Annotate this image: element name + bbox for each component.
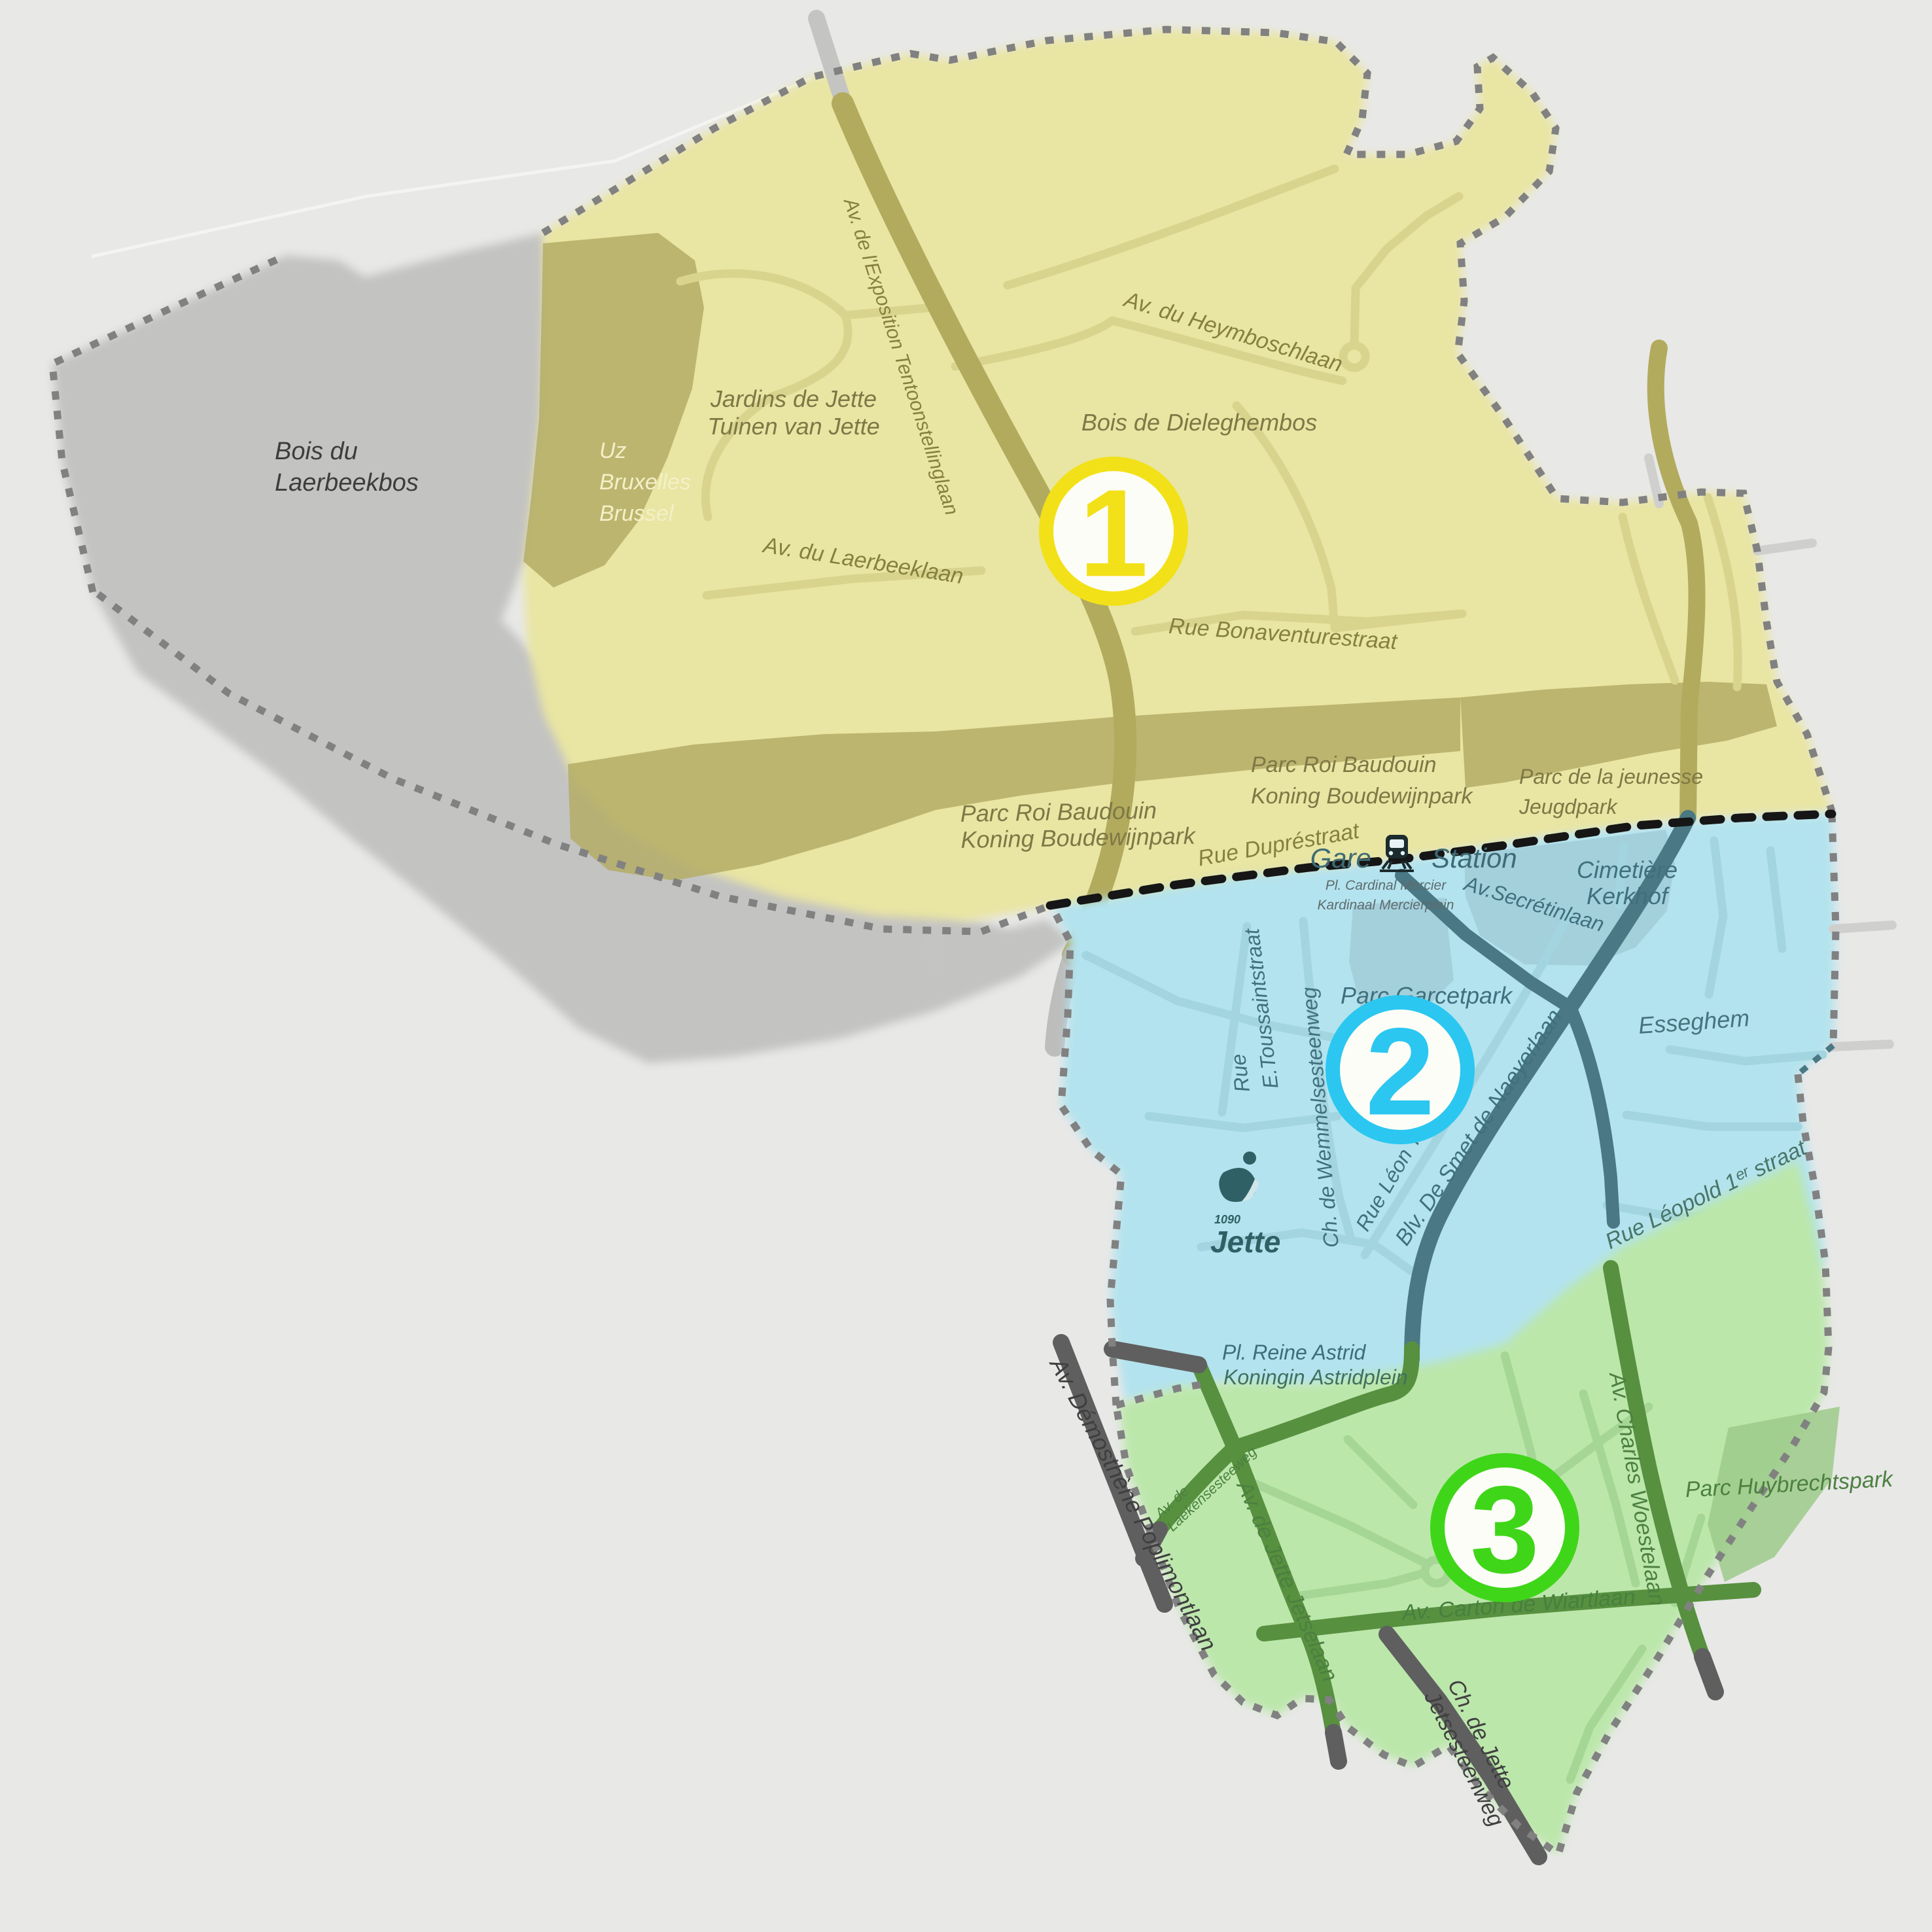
label-pl-reine-astrid-line-0: Pl. Reine Astrid bbox=[1222, 1341, 1367, 1364]
label-parc-roi-baudouin-east-line-0: Parc Roi Baudouin bbox=[1251, 752, 1437, 777]
road-stub-right-2 bbox=[1832, 1044, 1889, 1047]
label-uz-bruxelles-brussel-line-0: Uz bbox=[599, 438, 627, 463]
zone-marker-1: 1 bbox=[1046, 464, 1181, 603]
label-parc-de-la-jeunesse-line-1: Jeugdpark bbox=[1519, 795, 1618, 818]
label-parc-roi-baudouin-west-line-0: Parc Roi Baudouin bbox=[960, 797, 1157, 827]
jette-zone-map[interactable]: Bois duLaerbeekbosUzBruxellesBrusselJard… bbox=[0, 0, 1932, 1932]
zone-marker-number: 2 bbox=[1365, 1002, 1435, 1141]
zone-marker-number: 1 bbox=[1079, 464, 1148, 603]
label-jardins-de-jette: Jardins de JetteTuinen van Jette bbox=[707, 385, 880, 440]
label-parc-roi-baudouin-east-line-1: Koning Boudewijnpark bbox=[1251, 784, 1473, 809]
label-pl-reine-astrid: Pl. Reine Astrid bbox=[1222, 1341, 1367, 1364]
label-koningin-astridplein: Koningin Astridplein bbox=[1223, 1365, 1408, 1389]
label-bois-du-laerbeekbos-line-0: Bois du bbox=[275, 438, 358, 465]
label-gare: Gare bbox=[1310, 843, 1371, 873]
label-cimetiere-kerkhof: CimetièreKerkhof bbox=[1577, 856, 1677, 909]
label-cimetiere-kerkhof-line-1: Kerkhof bbox=[1587, 883, 1670, 909]
label-rue-e-toussaintstraat-line-0: Rue bbox=[1226, 1053, 1254, 1094]
label-jette-postcode-line-0: 1090 bbox=[1214, 1213, 1240, 1226]
label-jardins-de-jette-line-0: Jardins de Jette bbox=[710, 385, 877, 412]
label-bois-du-laerbeekbos-line-1: Laerbeekbos bbox=[275, 469, 419, 497]
label-jette-postcode: 1090 bbox=[1214, 1213, 1240, 1226]
zone-marker-3: 3 bbox=[1437, 1460, 1572, 1599]
label-station-line-0: Station bbox=[1431, 843, 1517, 873]
label-gare-line-0: Gare bbox=[1310, 843, 1371, 873]
label-jette-name-line-0: Jette bbox=[1210, 1225, 1280, 1259]
road-stub-right-1 bbox=[1833, 925, 1892, 929]
zone-marker-2: 2 bbox=[1333, 1002, 1467, 1141]
label-pl-cardinal-mercier-line-0: Pl. Cardinal Mercier bbox=[1326, 878, 1447, 893]
label-cimetiere-kerkhof-line-0: Cimetière bbox=[1577, 856, 1677, 883]
label-uz-bruxelles-brussel-line-1: Bruxelles bbox=[599, 470, 691, 495]
label-station: Station bbox=[1431, 843, 1517, 873]
label-bois-de-dieleghembos-line-0: Bois de Dieleghembos bbox=[1081, 409, 1317, 436]
label-jette-name: Jette bbox=[1210, 1225, 1280, 1259]
label-parc-de-la-jeunesse-line-0: Parc de la jeunesse bbox=[1519, 765, 1703, 788]
label-uz-bruxelles-brussel-line-2: Brussel bbox=[599, 501, 675, 526]
label-bois-de-dieleghembos: Bois de Dieleghembos bbox=[1081, 409, 1317, 436]
label-pl-cardinal-mercier-line-1: Kardinaal Mercierplein bbox=[1318, 898, 1454, 913]
label-parc-roi-baudouin-west-line-1: Koning Boudewijnpark bbox=[960, 822, 1197, 853]
label-koningin-astridplein-line-0: Koningin Astridplein bbox=[1223, 1365, 1408, 1389]
zone-marker-number: 3 bbox=[1470, 1460, 1539, 1599]
label-jardins-de-jette-line-1: Tuinen van Jette bbox=[707, 413, 880, 440]
